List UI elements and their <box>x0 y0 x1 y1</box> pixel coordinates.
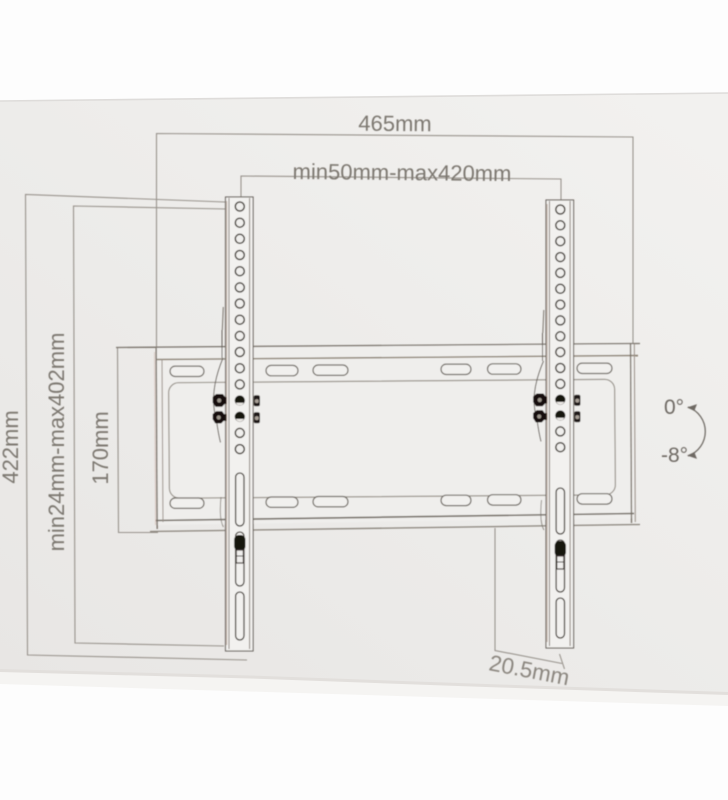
svg-text:min50mm-max420mm: min50mm-max420mm <box>292 159 511 186</box>
svg-text:170mm: 170mm <box>88 411 113 484</box>
svg-text:465mm: 465mm <box>358 111 432 137</box>
svg-text:0°: 0° <box>664 396 684 419</box>
svg-text:422mm: 422mm <box>0 410 23 483</box>
svg-text:min24mm-max402mm: min24mm-max402mm <box>44 333 69 552</box>
svg-text:-8°: -8° <box>661 444 688 467</box>
